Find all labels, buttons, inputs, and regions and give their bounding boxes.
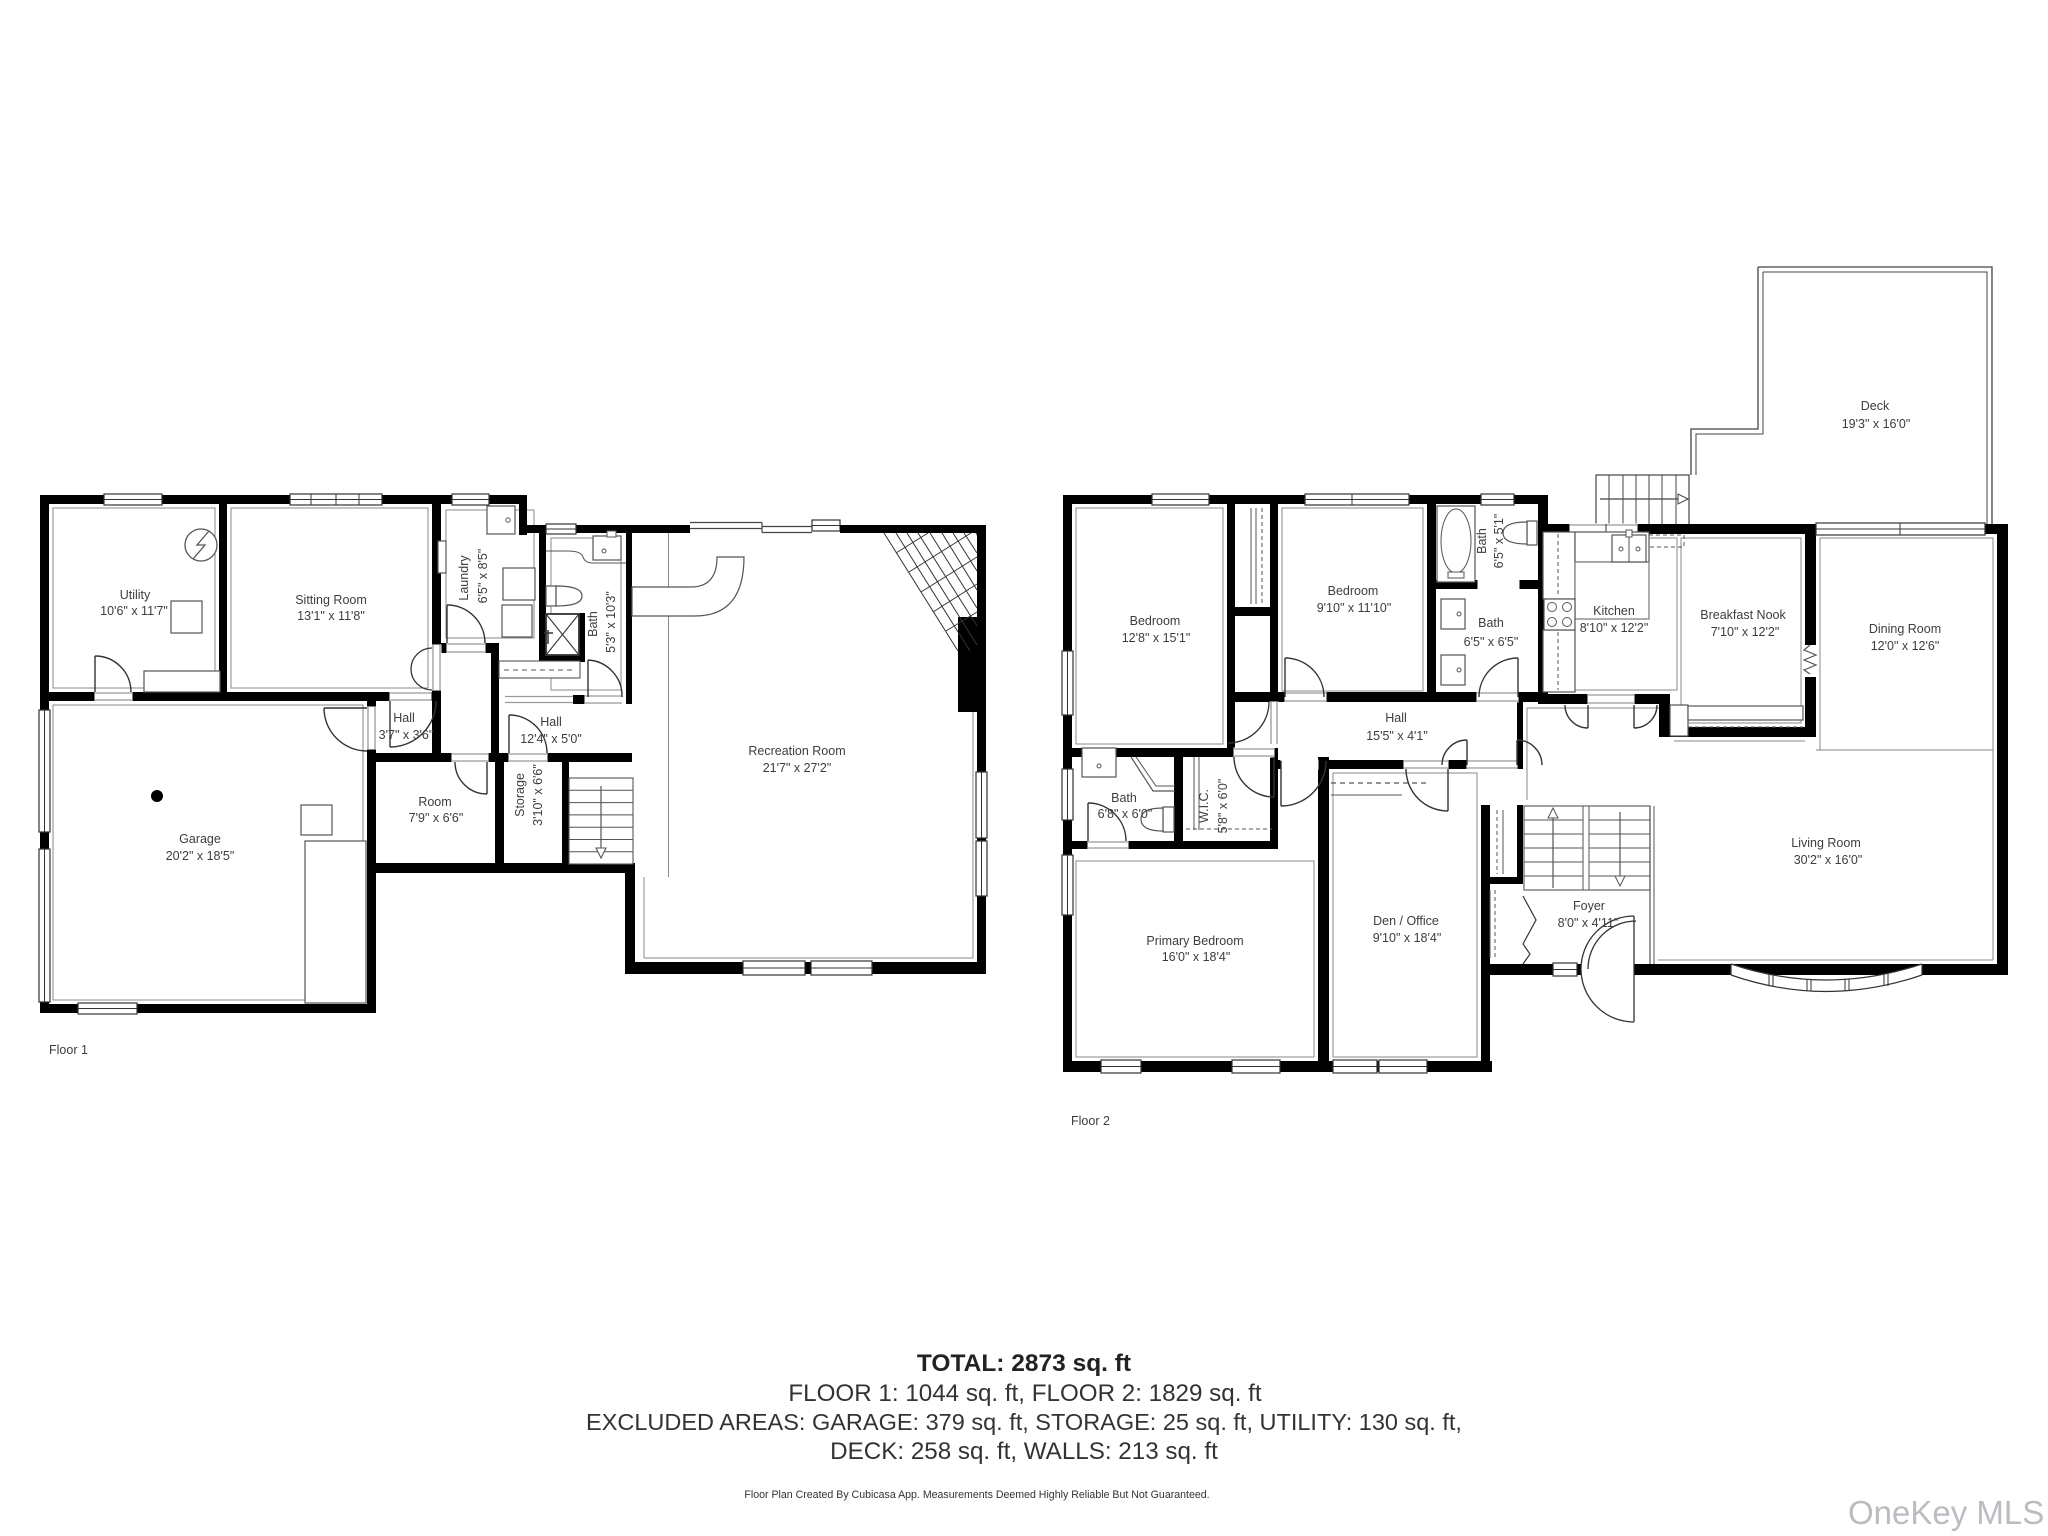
svg-text:30'2" x 16'0": 30'2" x 16'0" xyxy=(1794,853,1863,867)
svg-text:Dining Room: Dining Room xyxy=(1869,622,1941,636)
svg-text:3'7" x 3'6": 3'7" x 3'6" xyxy=(379,728,434,742)
svg-text:Bath: Bath xyxy=(586,611,600,637)
svg-text:Storage: Storage xyxy=(513,773,527,817)
svg-text:Laundry: Laundry xyxy=(457,555,471,601)
svg-text:8'10" x 12'2": 8'10" x 12'2" xyxy=(1580,621,1649,635)
svg-text:OneKey MLS: OneKey MLS xyxy=(1848,1494,2044,1531)
svg-text:Room: Room xyxy=(418,795,451,809)
svg-text:7'9" x 6'6": 7'9" x 6'6" xyxy=(409,811,464,825)
svg-text:Floor Plan Created By Cubicasa: Floor Plan Created By Cubicasa App. Meas… xyxy=(744,1489,1209,1501)
svg-text:Foyer: Foyer xyxy=(1573,899,1605,913)
svg-text:Garage: Garage xyxy=(179,832,221,846)
svg-text:Deck: Deck xyxy=(1861,399,1890,413)
svg-text:Utility: Utility xyxy=(120,588,151,602)
svg-text:FLOOR 1: 1044 sq. ft, FLOOR 2:: FLOOR 1: 1044 sq. ft, FLOOR 2: 1829 sq. … xyxy=(788,1380,1261,1407)
svg-text:21'7" x 27'2": 21'7" x 27'2" xyxy=(763,761,832,775)
svg-text:Floor 2: Floor 2 xyxy=(1071,1114,1110,1128)
svg-text:5'8" x 6'0": 5'8" x 6'0" xyxy=(1216,779,1230,834)
svg-text:Kitchen: Kitchen xyxy=(1593,604,1635,618)
svg-text:12'4" x 5'0": 12'4" x 5'0" xyxy=(520,732,582,746)
svg-text:Primary Bedroom: Primary Bedroom xyxy=(1146,934,1243,948)
svg-text:6'8" x 6'0": 6'8" x 6'0" xyxy=(1098,807,1153,821)
svg-text:Bath: Bath xyxy=(1478,616,1504,630)
svg-text:W.I.C.: W.I.C. xyxy=(1197,789,1211,823)
svg-text:9'10" x 11'10": 9'10" x 11'10" xyxy=(1317,601,1392,615)
svg-text:EXCLUDED AREAS: GARAGE: 379 sq: EXCLUDED AREAS: GARAGE: 379 sq. ft, STOR… xyxy=(586,1409,1462,1435)
svg-text:6'5" x 5'1": 6'5" x 5'1" xyxy=(1492,514,1506,569)
svg-text:7'10" x 12'2": 7'10" x 12'2" xyxy=(1711,625,1780,639)
svg-text:Sitting Room: Sitting Room xyxy=(295,593,367,607)
svg-text:13'1" x 11'8": 13'1" x 11'8" xyxy=(297,609,365,623)
svg-text:DECK: 258 sq. ft, WALLS: 213 s: DECK: 258 sq. ft, WALLS: 213 sq. ft xyxy=(830,1438,1218,1465)
svg-text:20'2" x 18'5": 20'2" x 18'5" xyxy=(166,849,235,863)
svg-text:12'0" x 12'6": 12'0" x 12'6" xyxy=(1871,639,1940,653)
svg-text:6'5" x 6'5": 6'5" x 6'5" xyxy=(1464,635,1519,649)
svg-text:9'10" x 18'4": 9'10" x 18'4" xyxy=(1373,931,1442,945)
svg-text:15'5" x 4'1": 15'5" x 4'1" xyxy=(1366,729,1428,743)
svg-text:3'10" x 6'6": 3'10" x 6'6" xyxy=(531,764,545,826)
svg-text:Bedroom: Bedroom xyxy=(1328,584,1379,598)
svg-text:Bath: Bath xyxy=(1475,528,1489,554)
svg-text:Bedroom: Bedroom xyxy=(1130,614,1181,628)
svg-text:10'6" x 11'7": 10'6" x 11'7" xyxy=(100,604,168,618)
svg-text:Floor 1: Floor 1 xyxy=(49,1043,88,1057)
svg-text:Bath: Bath xyxy=(1111,791,1137,805)
svg-text:Den / Office: Den / Office xyxy=(1373,914,1439,928)
svg-text:Hall: Hall xyxy=(393,711,415,725)
svg-text:12'8" x 15'1": 12'8" x 15'1" xyxy=(1122,631,1191,645)
svg-text:Recreation Room: Recreation Room xyxy=(748,744,845,758)
svg-text:Hall: Hall xyxy=(540,715,562,729)
svg-text:19'3" x 16'0": 19'3" x 16'0" xyxy=(1842,417,1911,431)
svg-text:6'5" x 8'5": 6'5" x 8'5" xyxy=(476,549,490,604)
svg-text:5'3" x 10'3": 5'3" x 10'3" xyxy=(604,591,618,653)
svg-text:Living Room: Living Room xyxy=(1791,836,1860,850)
svg-text:16'0" x 18'4": 16'0" x 18'4" xyxy=(1162,950,1231,964)
svg-text:TOTAL: 2873 sq. ft: TOTAL: 2873 sq. ft xyxy=(917,1350,1131,1377)
svg-text:Breakfast Nook: Breakfast Nook xyxy=(1700,608,1786,622)
svg-text:8'0" x 4'11": 8'0" x 4'11" xyxy=(1558,916,1619,930)
svg-text:Hall: Hall xyxy=(1385,711,1407,725)
